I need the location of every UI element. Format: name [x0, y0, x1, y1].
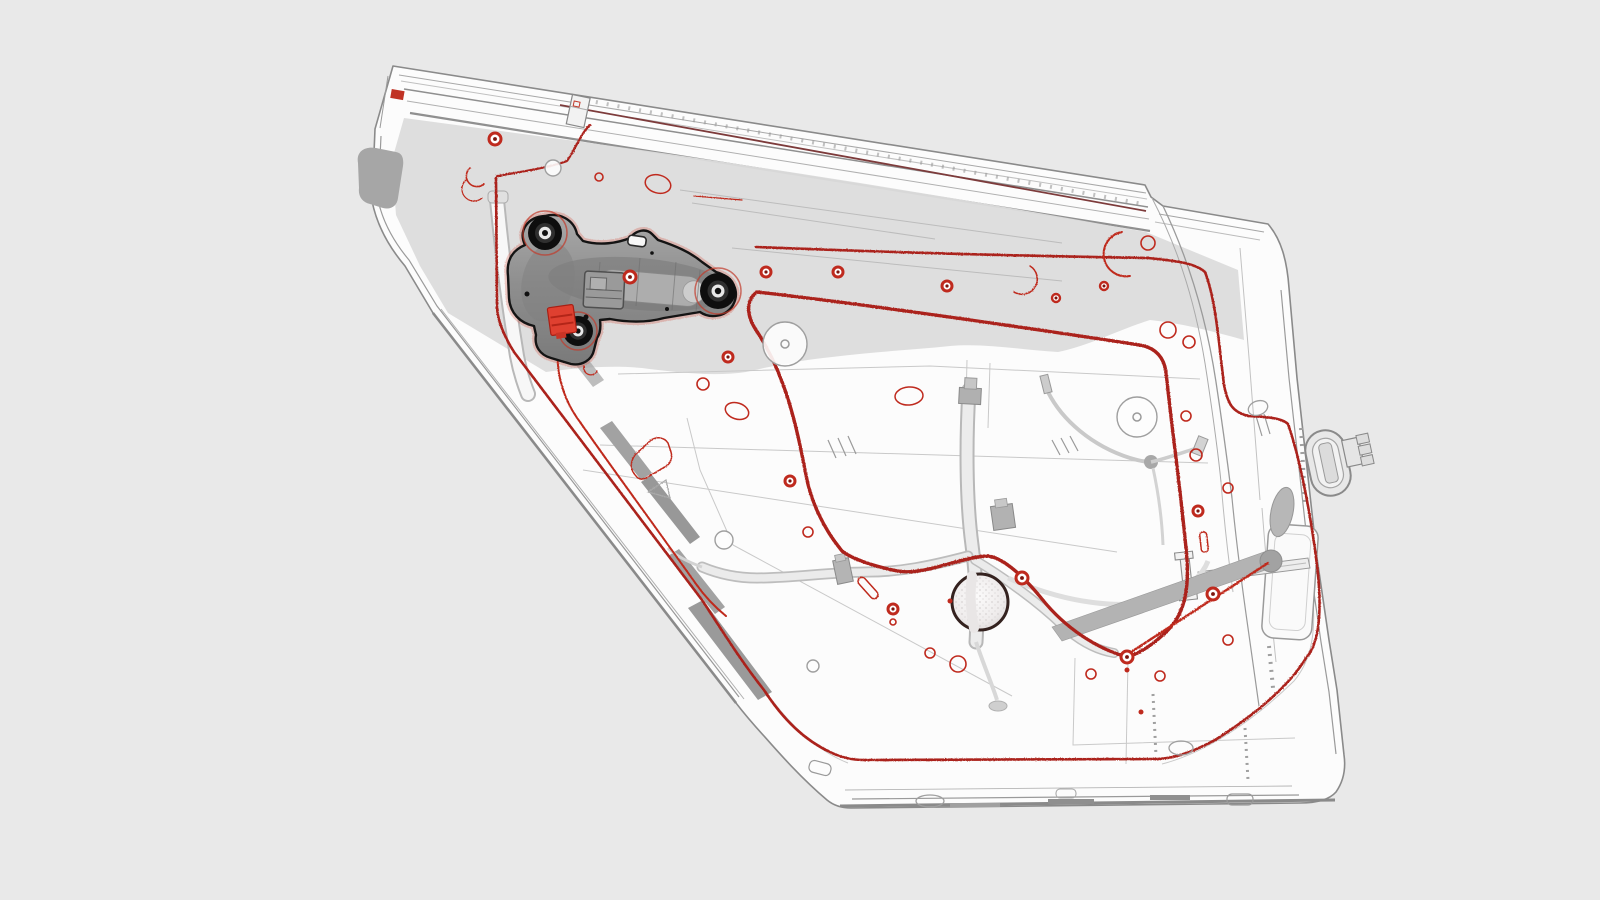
- fastener-marker-center: [1020, 576, 1024, 580]
- fastener-marker-center: [1196, 509, 1199, 512]
- fastener-marker-center: [788, 479, 791, 482]
- parts-diagram-stage: [0, 0, 1600, 900]
- fastener-marker-center: [945, 284, 948, 287]
- fastener-marker-center: [1103, 285, 1106, 288]
- bar-end-blob: [1260, 550, 1282, 572]
- dot-marker: [948, 599, 953, 604]
- panel-hole: [545, 160, 561, 176]
- speaker-grommet: [952, 574, 1008, 630]
- dot-marker: [1139, 710, 1144, 715]
- harness-foot: [989, 701, 1007, 711]
- fastener-marker-center: [628, 275, 632, 279]
- part-connector-box: [583, 271, 625, 309]
- fastener-marker-center: [726, 355, 729, 358]
- fastener-marker-center: [1125, 655, 1129, 659]
- dot-marker: [1125, 668, 1130, 673]
- fastener-marker-center: [1211, 592, 1215, 596]
- fastener-marker-center: [891, 607, 894, 610]
- edge-dark-patch: [358, 148, 404, 209]
- fastener-marker-center: [1055, 297, 1058, 300]
- fastener-marker-center: [493, 137, 497, 141]
- mount-grommet-top-left: [523, 211, 567, 255]
- panel-hole: [1117, 397, 1157, 437]
- panel-hole: [763, 322, 807, 366]
- panel-hole: [807, 660, 819, 672]
- channel-cap: [488, 191, 508, 203]
- part-slot: [627, 235, 646, 247]
- panel-hole: [715, 531, 733, 549]
- fastener-marker-center: [836, 270, 839, 273]
- door-assembly-diagram: [0, 0, 1600, 900]
- pillar-bracket-panel: [1261, 523, 1319, 640]
- fastener-marker-center: [764, 270, 767, 273]
- mount-grommet-right: [695, 268, 741, 314]
